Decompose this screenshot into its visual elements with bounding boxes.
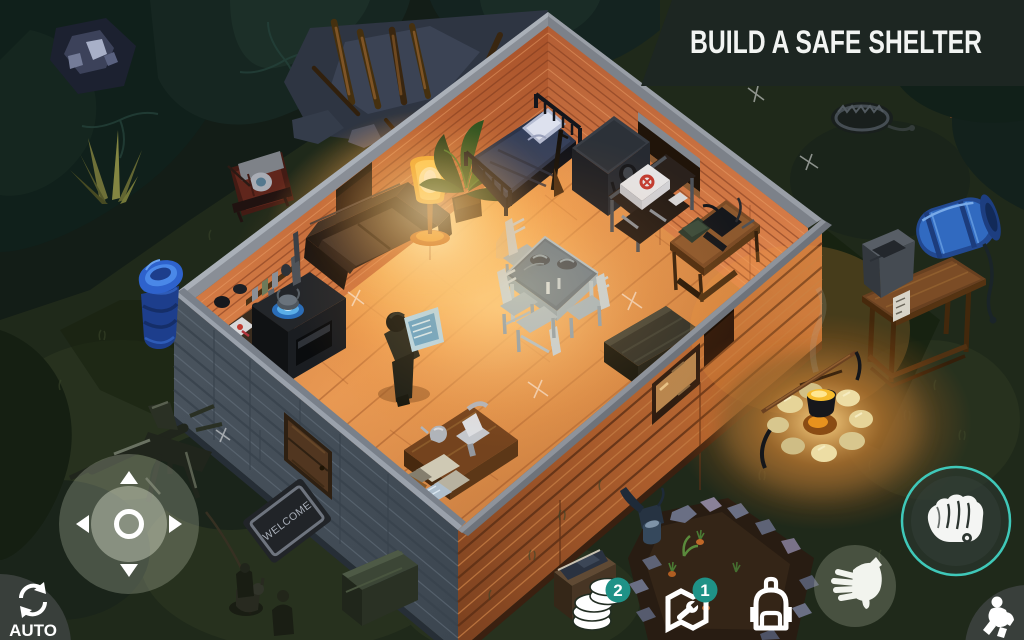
svg-text:BUILD A SAFE SHELTER: BUILD A SAFE SHELTER	[690, 24, 982, 60]
svg-text:2: 2	[613, 581, 622, 600]
svg-text:AUTO: AUTO	[9, 621, 57, 640]
svg-text:1: 1	[700, 581, 709, 600]
